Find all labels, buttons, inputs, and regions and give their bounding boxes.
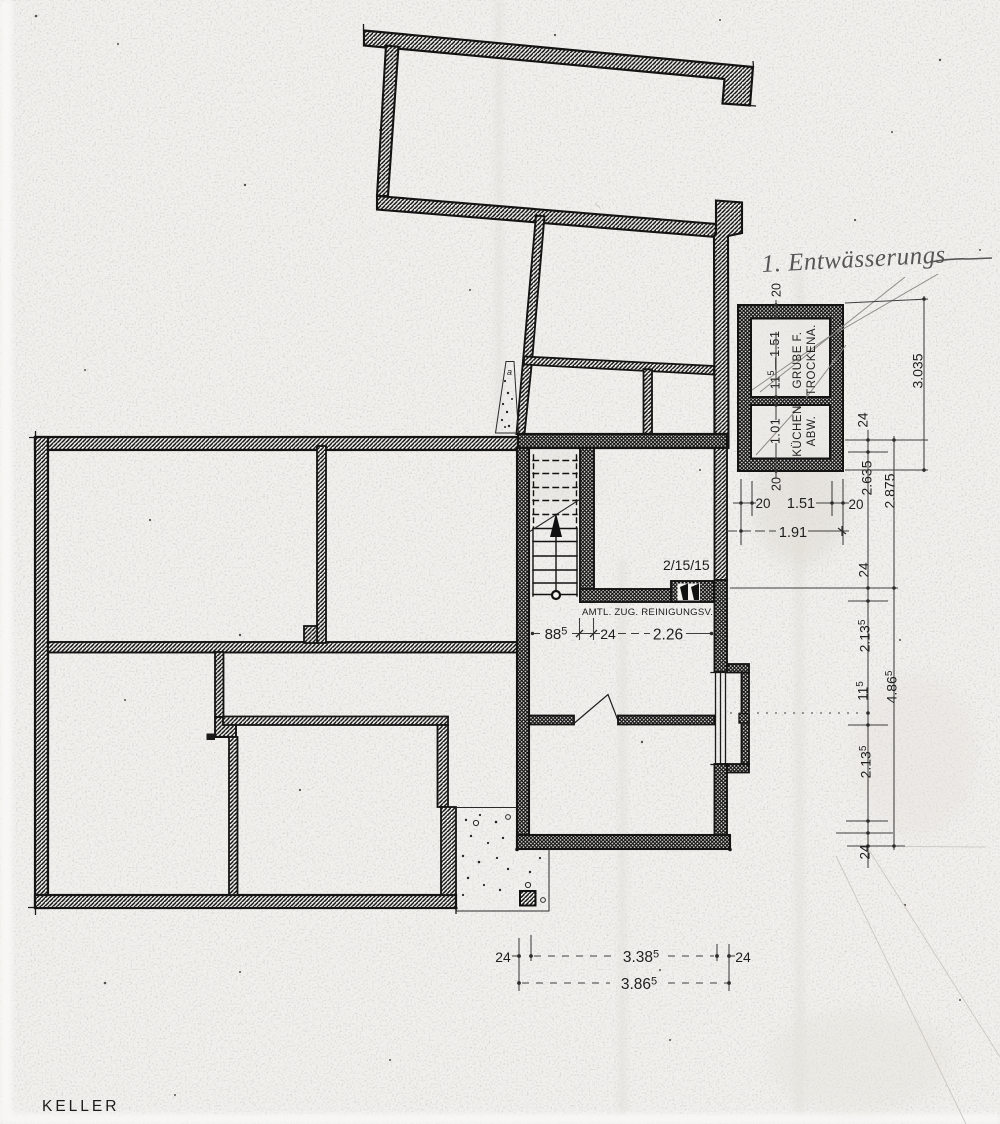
svg-text:3.035: 3.035 (910, 353, 926, 388)
svg-text:1.01: 1.01 (768, 418, 782, 444)
svg-text:20: 20 (769, 477, 783, 491)
svg-text:KÜCHEN: KÜCHEN (792, 405, 804, 457)
svg-text:2/15/15: 2/15/15 (663, 557, 710, 573)
svg-text:GRUBE F.: GRUBE F. (792, 331, 804, 388)
svg-text:24: 24 (857, 562, 872, 578)
svg-text:a: a (507, 367, 512, 377)
svg-text:20: 20 (848, 497, 863, 512)
svg-text:24: 24 (495, 949, 511, 965)
svg-text:2.26: 2.26 (653, 627, 683, 644)
svg-text:ABW.: ABW. (806, 416, 818, 447)
svg-text:24: 24 (856, 412, 871, 428)
svg-text:24: 24 (735, 949, 751, 965)
svg-text:115—1.51: 115—1.51 (766, 331, 782, 390)
svg-text:2.635: 2.635 (859, 460, 875, 495)
svg-text:1.91: 1.91 (779, 525, 807, 541)
svg-text:20: 20 (755, 496, 770, 511)
svg-text:TROCKENA.: TROCKENA. (806, 324, 818, 396)
svg-text:1.51: 1.51 (787, 496, 815, 512)
svg-text:AMTL. ZUG. REINIGUNGSV.: AMTL. ZUG. REINIGUNGSV. (582, 607, 713, 618)
svg-text:20: 20 (769, 283, 783, 297)
svg-text:KELLER: KELLER (42, 1098, 119, 1115)
svg-text:24: 24 (600, 626, 616, 642)
svg-text:2.875: 2.875 (882, 473, 898, 508)
